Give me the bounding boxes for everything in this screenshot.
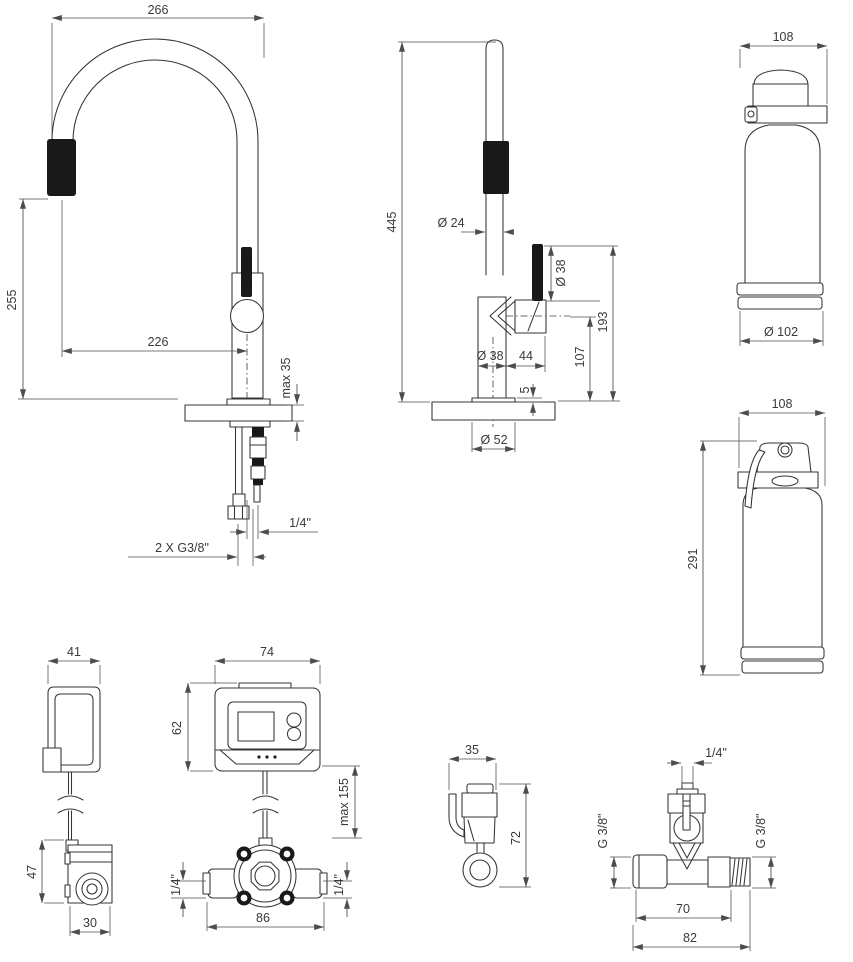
- dim-label-spout-diameter: Ø 24: [437, 216, 464, 230]
- dim-label-tee-top-port: 1/4": [705, 746, 727, 760]
- dim-label-head-height: 47: [25, 865, 39, 879]
- dim-label-filter2-height: 291: [686, 549, 700, 570]
- filter2-ring-2: [742, 661, 823, 673]
- dim-label-base-diameter: Ø 52: [480, 433, 507, 447]
- filter-clip-pin: [748, 111, 754, 117]
- tap-neck: [477, 843, 484, 854]
- dim-tee-total-width: 82: [633, 890, 750, 951]
- dim-reach: 226: [62, 200, 247, 357]
- dim-tee-right-thread: G 3/8": [752, 813, 776, 888]
- faucet-side-view: 445 Ø 24 Ø 38 193 107 44: [385, 40, 620, 452]
- tee-thread: [730, 858, 750, 886]
- dim-label-filter2-width: 108: [772, 397, 793, 411]
- shutoff-valve-view: 35 72: [449, 743, 531, 887]
- dim-label-filter-diameter: Ø 102: [764, 325, 798, 339]
- dim-label-handle-top-height: 193: [596, 312, 610, 333]
- base-flange-side: [472, 398, 515, 402]
- dim-label-counter-thickness: max 35: [279, 357, 293, 398]
- dim-handle-offset: 44: [506, 336, 545, 372]
- dim-label-box-width: 74: [260, 645, 274, 659]
- dim-label-head-width: 30: [83, 916, 97, 930]
- dim-tee-left-thread: G 3/8": [596, 813, 631, 888]
- hook-cable: [58, 772, 83, 841]
- box-led-2: [265, 755, 268, 758]
- tee-fitting-view: 1/4" G 3/8" G 3/8" 70 82: [596, 746, 776, 951]
- dim-label-bracket-width: 41: [67, 645, 81, 659]
- filter-cartridge-side-view: 108 291: [686, 397, 825, 675]
- dim-label-spout-width: 266: [148, 3, 169, 17]
- head-knob-inner: [87, 884, 97, 894]
- tap-upper-body: [462, 793, 497, 817]
- head-tab-bottom: [65, 885, 70, 897]
- dim-tee-center-width: 70: [636, 890, 731, 922]
- dim-spout-diameter: Ø 24: [437, 216, 513, 232]
- filter-cap-body: [753, 84, 808, 106]
- spout-arc-inner: [73, 60, 237, 274]
- filter-ring-2: [738, 297, 822, 309]
- dim-spout-width: 266: [52, 3, 264, 138]
- dim-label-body-diameter: Ø 38: [476, 349, 503, 363]
- valve-pipe-left: [208, 869, 238, 898]
- filter-collar: [748, 106, 827, 123]
- spout-arc-outer: [52, 39, 258, 274]
- hook-block: [43, 748, 61, 772]
- dim-spray-height: 255: [5, 199, 178, 399]
- box-button-top: [287, 713, 301, 727]
- dim-base-diameter: Ø 52: [472, 422, 515, 452]
- dim-label-tee-right-thread: G 3/8": [754, 813, 768, 848]
- dim-handle-axis-height: 107: [570, 317, 596, 401]
- control-box-view: 74 62 max 155 1/4" 1/4": [169, 645, 362, 931]
- tee-cap: [677, 789, 698, 794]
- dim-label-box-height: 62: [170, 721, 184, 735]
- dim-label-handle-offset: 44: [519, 349, 533, 363]
- dim-label-base-thickness: 5: [518, 386, 532, 393]
- dim-bracket-width: 41: [48, 645, 100, 684]
- dim-label-tee-total-width: 82: [683, 931, 697, 945]
- dim-label-handle-diameter: Ø 38: [554, 259, 568, 286]
- dim-label-handle-axis-height: 107: [573, 347, 587, 368]
- dim-cable-length: max 155: [322, 766, 362, 838]
- dim-label-supply-hoses: 2 X G3/8": [155, 541, 209, 555]
- mounting-flange: [230, 421, 270, 427]
- tee-pipe-center: [667, 860, 708, 884]
- tap-ring-inner: [470, 860, 490, 880]
- filter2-bottle: [743, 488, 822, 647]
- outlet-hose-connector: [250, 427, 266, 502]
- supply-hose-left: [228, 427, 249, 519]
- dim-head-width: 30: [70, 906, 110, 936]
- handle-housing: [515, 300, 546, 333]
- dim-label-spray-height: 255: [5, 290, 19, 311]
- filter-bottle: [745, 125, 820, 283]
- tap-cap: [467, 784, 493, 793]
- dim-tee-top-port: 1/4": [667, 746, 727, 786]
- valve-pipe-right: [292, 869, 322, 898]
- solenoid-valve-block: [203, 838, 327, 907]
- joint-circle: [231, 300, 264, 333]
- tee-pipe-left: [633, 855, 667, 888]
- dim-label-filter-width: 108: [773, 30, 794, 44]
- head-tab-top: [65, 853, 70, 864]
- filter-cartridge-front-view: 108 Ø 102: [737, 30, 827, 346]
- dim-label-tee-left-thread: G 3/8": [596, 813, 610, 848]
- box-led-1: [257, 755, 260, 758]
- box-cable: [253, 771, 278, 839]
- handle-front: [241, 247, 252, 297]
- faucet-front-view: 266 255 226 max 35 1/4": [5, 3, 318, 566]
- box-display: [238, 712, 274, 741]
- dim-box-width: 74: [215, 645, 320, 684]
- dim-counter-thickness: max 35: [279, 357, 304, 441]
- tee-stem: [683, 794, 690, 830]
- dim-label-valve-port-right: 1/4": [332, 874, 346, 896]
- dim-label-valve-port-left: 1/4": [169, 874, 183, 896]
- base-flange-front: [227, 399, 270, 405]
- technical-drawing: 266 255 226 max 35 1/4": [0, 0, 853, 962]
- dim-label-tap-width: 35: [465, 743, 479, 757]
- box-led-3: [273, 755, 276, 758]
- dim-label-valve-width: 86: [256, 911, 270, 925]
- spout-grip: [483, 141, 509, 194]
- valve-center: [255, 866, 275, 886]
- countertop-front: [185, 405, 292, 421]
- box-button-bottom: [288, 728, 301, 741]
- dim-label-outlet-hose: 1/4": [289, 516, 311, 530]
- valve-cap-left: [203, 873, 210, 894]
- handle-side: [532, 244, 543, 301]
- tee-cone-inner: [679, 843, 695, 858]
- dim-tap-width: 35: [449, 743, 496, 790]
- dim-tap-height: 72: [499, 784, 531, 887]
- tee-stem-top: [682, 783, 693, 789]
- dim-label-reach: 226: [148, 335, 169, 349]
- filter2-eyelet-inner: [781, 446, 789, 454]
- dim-label-total-height: 445: [385, 212, 399, 233]
- dim-label-tee-center-width: 70: [676, 902, 690, 916]
- filter-cap-dome: [754, 70, 808, 84]
- filter2-ring-1: [741, 647, 824, 659]
- filter2-slot: [772, 476, 798, 486]
- technical-drawing-page: 266 255 226 max 35 1/4": [0, 0, 853, 962]
- filter-ring-1: [737, 283, 823, 295]
- countertop-side: [432, 402, 555, 420]
- dim-handle-diameter: Ø 38: [544, 246, 618, 301]
- dim-filter-diameter: Ø 102: [740, 311, 823, 346]
- spray-head: [47, 139, 76, 196]
- dim-label-tap-height: 72: [509, 831, 523, 845]
- hook-bracket-view: 41 47 30: [25, 645, 112, 936]
- dim-head-height: 47: [25, 840, 64, 903]
- valve-cap-right: [320, 873, 327, 894]
- dim-valve-port-left: 1/4": [169, 862, 206, 917]
- tee-pipe-right: [708, 857, 730, 887]
- dim-label-cable-length: max 155: [337, 778, 351, 826]
